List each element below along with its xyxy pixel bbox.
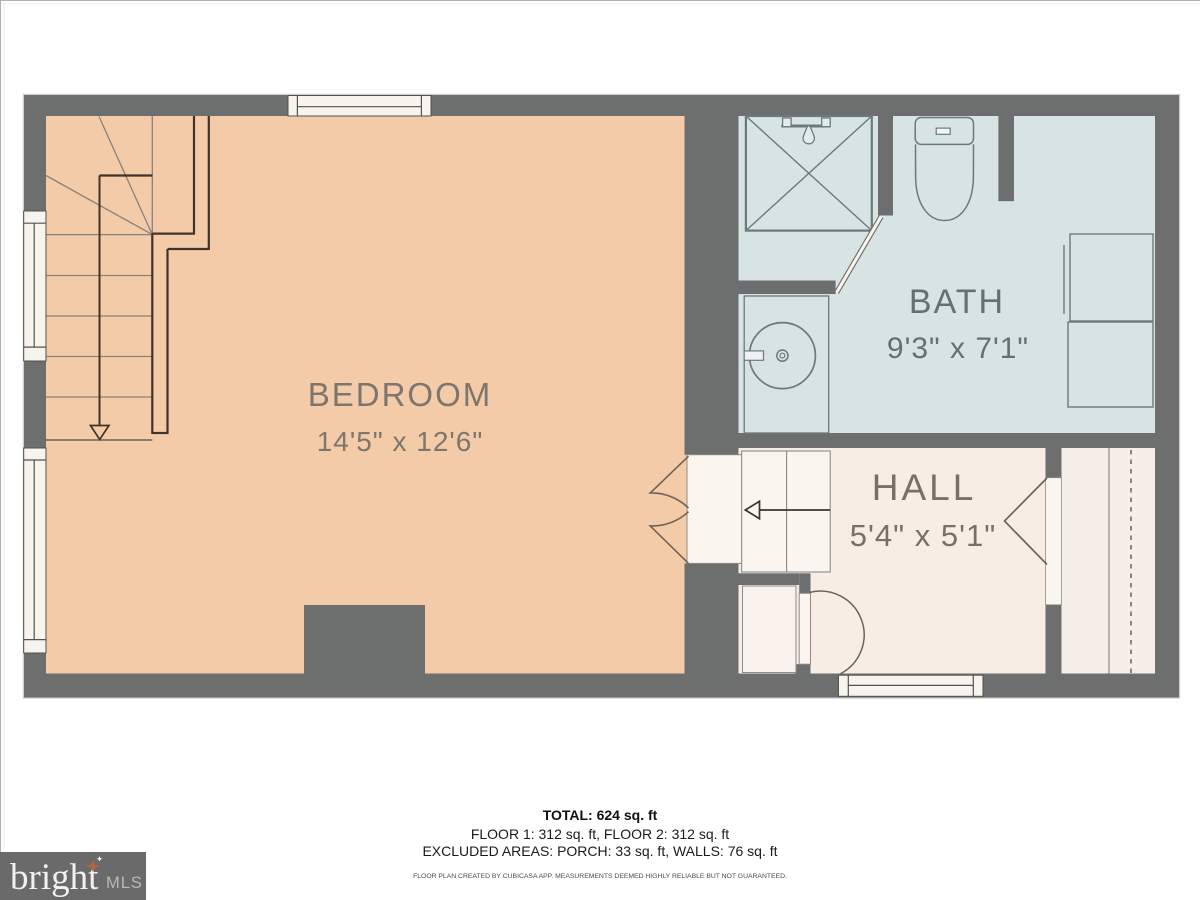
svg-text:5'4" x 5'1": 5'4" x 5'1" [850, 518, 997, 553]
svg-text:EXCLUDED AREAS: PORCH: 33 sq.: EXCLUDED AREAS: PORCH: 33 sq. ft, WALLS:… [422, 843, 777, 859]
svg-text:FLOOR 1: 312 sq. ft, FLOOR 2:: FLOOR 1: 312 sq. ft, FLOOR 2: 312 sq. ft [471, 826, 729, 842]
svg-text:MLS: MLS [106, 874, 143, 892]
svg-text:BEDROOM: BEDROOM [308, 376, 493, 413]
svg-text:HALL: HALL [872, 467, 977, 508]
svg-text:BATH: BATH [909, 283, 1005, 321]
svg-text:9'3" x 7'1": 9'3" x 7'1" [887, 332, 1029, 365]
svg-text:TOTAL: 624 sq. ft: TOTAL: 624 sq. ft [543, 807, 658, 823]
svg-text:14'5" x 12'6": 14'5" x 12'6" [317, 426, 484, 457]
svg-text:FLOOR PLAN CREATED BY CUBICASA: FLOOR PLAN CREATED BY CUBICASA APP. MEAS… [413, 873, 787, 880]
svg-text:bright: bright [10, 857, 99, 898]
